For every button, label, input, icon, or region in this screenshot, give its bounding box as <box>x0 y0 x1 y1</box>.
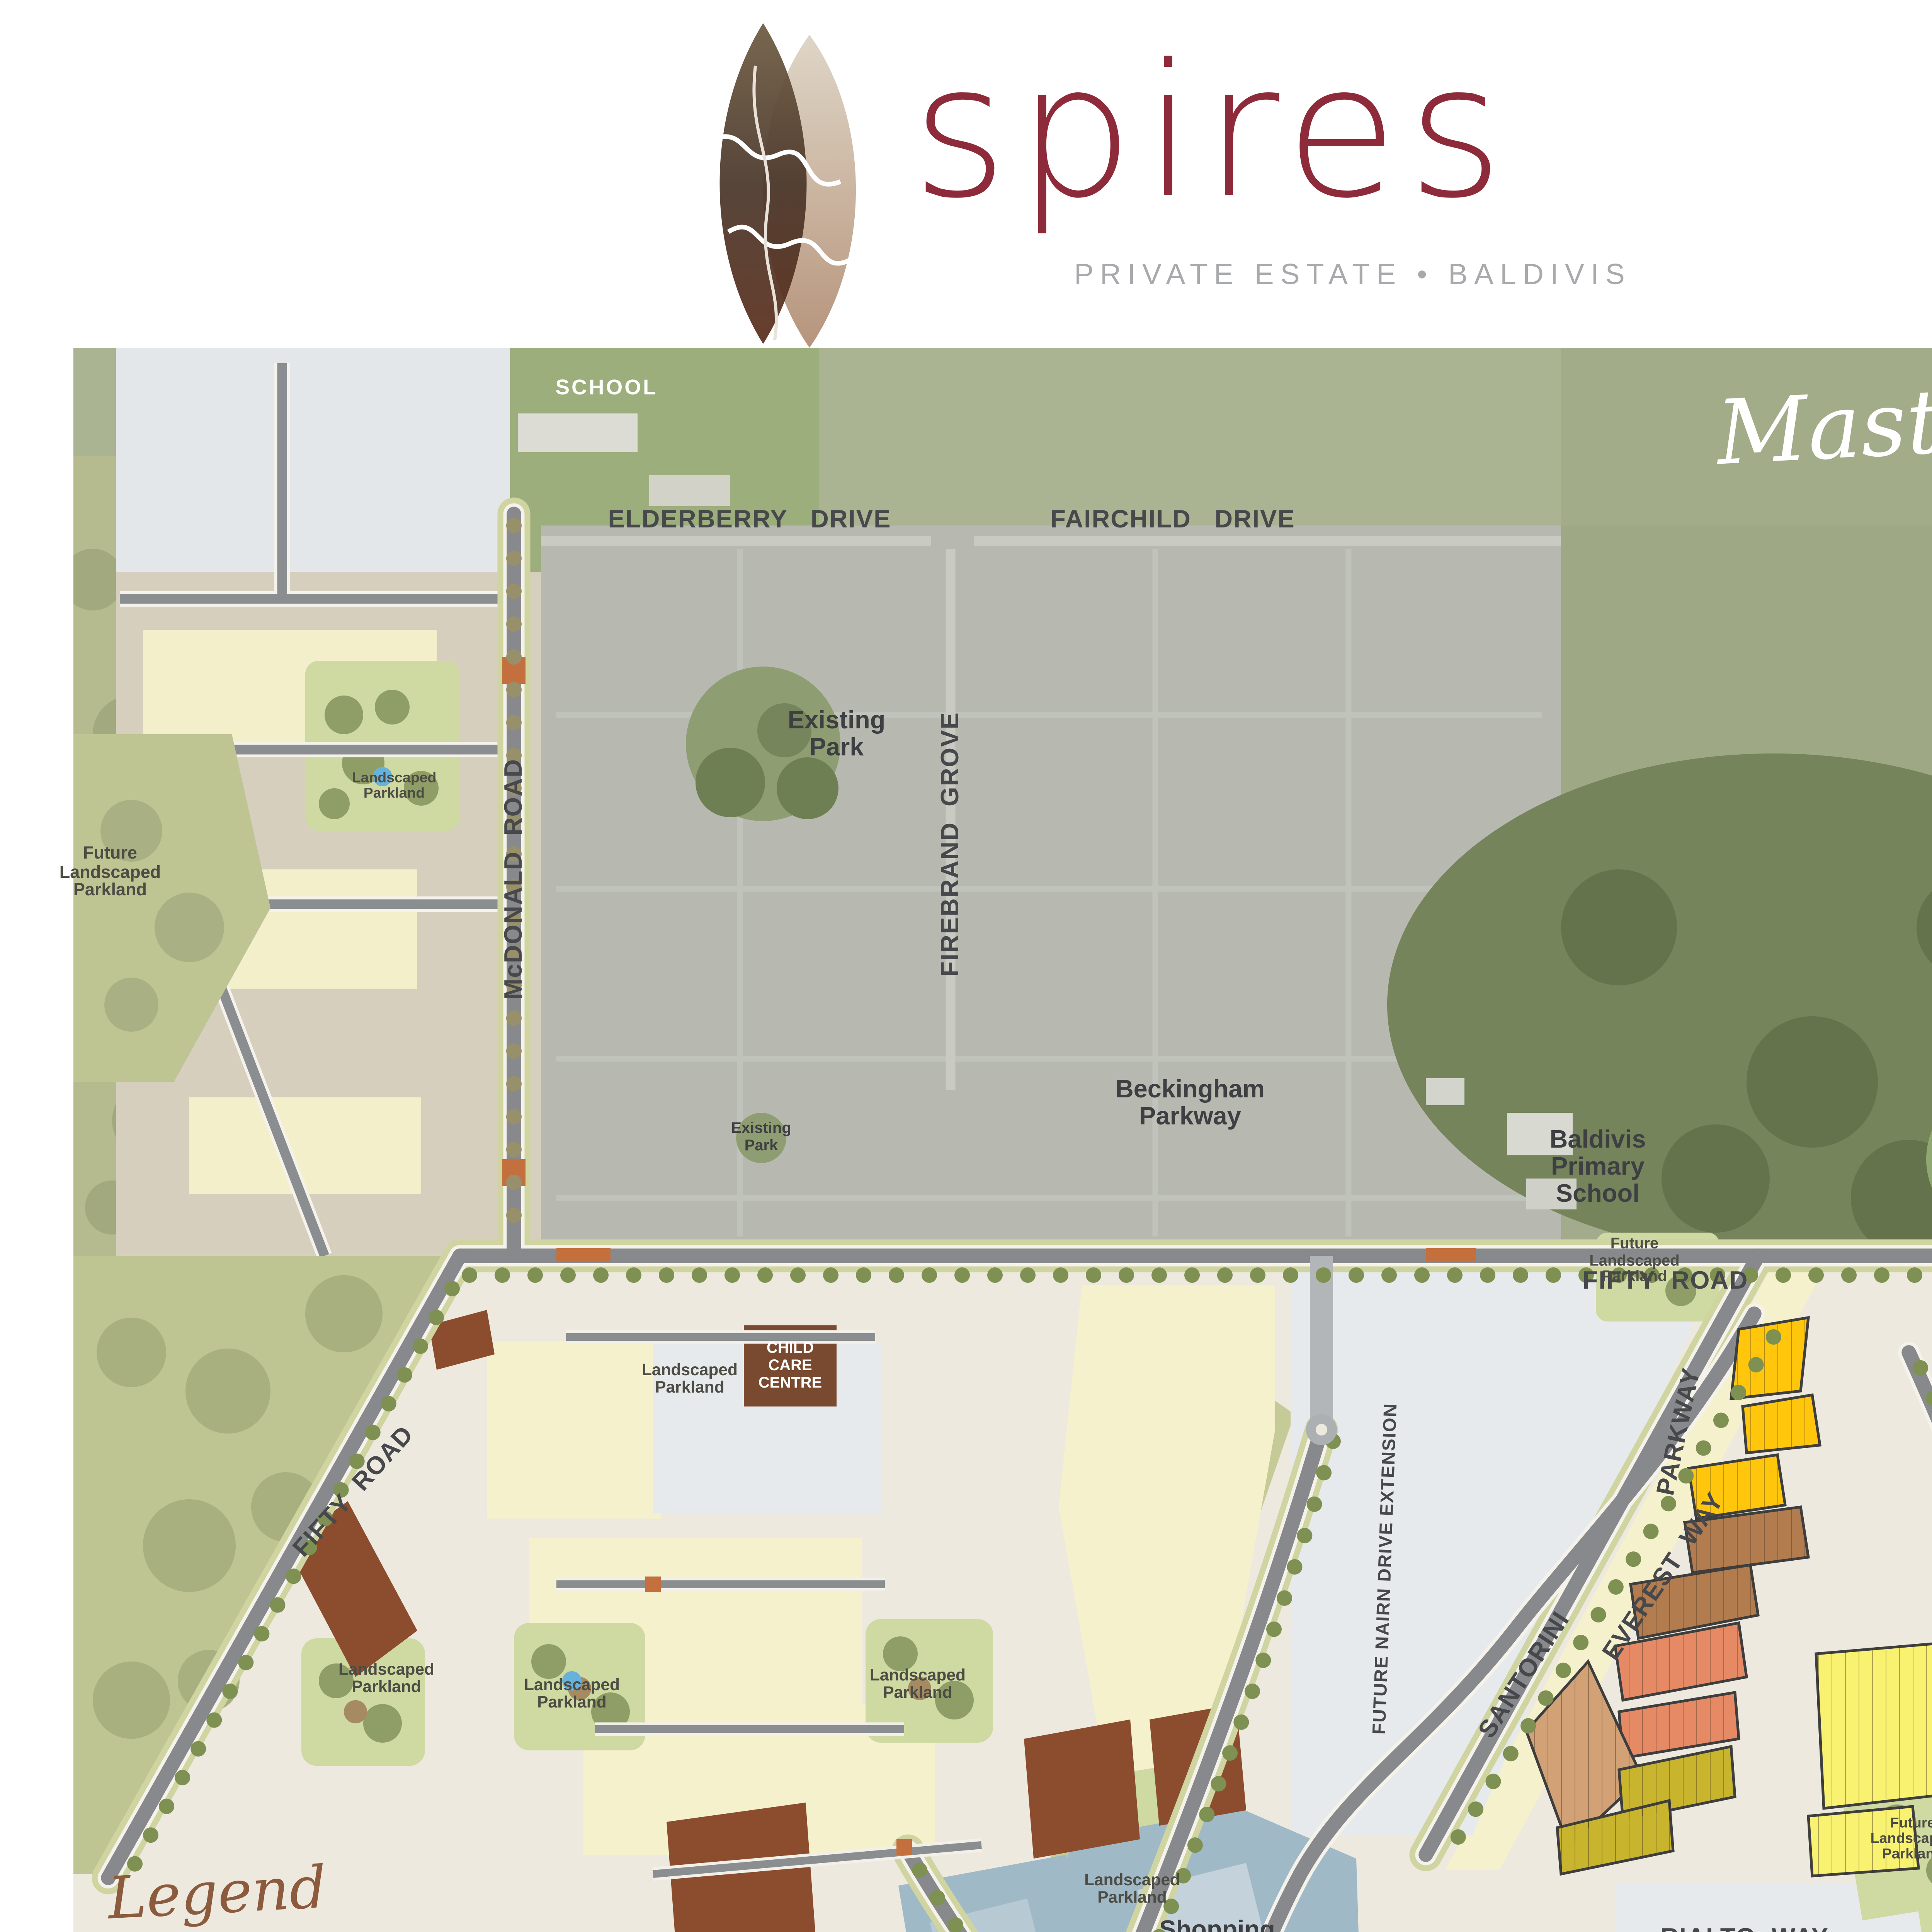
label-landscaped-parkland-6: Landscaped Parkland <box>1084 1872 1180 1907</box>
label-baldivis-reserve: Baldivis Reserve & Sporting Facilities <box>1920 1003 1932 1111</box>
brand-subtitle: PRIVATE ESTATE • BALDIVIS <box>1074 259 1631 292</box>
brand-wordmark: spires <box>912 43 1513 226</box>
legend: Legend Built Form Commercial Future Resi… <box>106 1866 840 1932</box>
road-label-mcdonald-road: McDONALD ROAD <box>500 759 527 1000</box>
label-landscaped-parkland-3: Landscaped Parkland <box>338 1661 434 1697</box>
label-school: SCHOOL <box>555 379 658 401</box>
header: spires PRIVATE ESTATE • BALDIVIS <box>0 0 1932 348</box>
label-existing-park-small: Existing Park <box>731 1121 791 1155</box>
label-beckingham-parkway: Beckingham Parkway <box>1116 1076 1265 1130</box>
label-landscaped-parkland-1: Landscaped Parkland <box>352 771 437 802</box>
label-future-landscaped-parkland-ne: Future Landscaped Parkland <box>1589 1236 1679 1286</box>
label-future-landscaped-parkland-se: Future Landscaped Parkland <box>1871 1816 1932 1862</box>
road-label-rialto-way: RIALTO WAY <box>1660 1924 1829 1932</box>
label-landscaped-parkland-5: Landscaped Parkland <box>870 1667 966 1702</box>
label-child-care-centre: CHILD CARE CENTRE <box>759 1339 822 1393</box>
masterplan-map: Masterplan SCHOOL ELDERBERRY DRIVE FAIRC… <box>73 348 1932 1932</box>
spires-leaf-logo-icon <box>690 19 895 352</box>
road-label-elderberry-drive: ELDERBERRY DRIVE <box>608 506 891 533</box>
label-landscaped-parkland-2: Landscaped Parkland <box>642 1362 738 1397</box>
label-future-landscaped-parkland-west: Future Landscaped Parkland <box>60 845 161 901</box>
label-shopping-business-centre: Shopping & Business Centre <box>1149 1917 1286 1932</box>
road-label-firebrand-grove: FIREBRAND GROVE <box>937 712 964 977</box>
page: spires PRIVATE ESTATE • BALDIVIS <box>0 0 1932 1932</box>
label-landscaped-parkland-4: Landscaped Parkland <box>524 1677 620 1712</box>
label-existing-park: Existing Park <box>788 707 886 761</box>
label-baldivis-primary-school: Baldivis Primary School <box>1549 1126 1646 1207</box>
road-label-fairchild-drive: FAIRCHILD DRIVE <box>1050 506 1295 533</box>
